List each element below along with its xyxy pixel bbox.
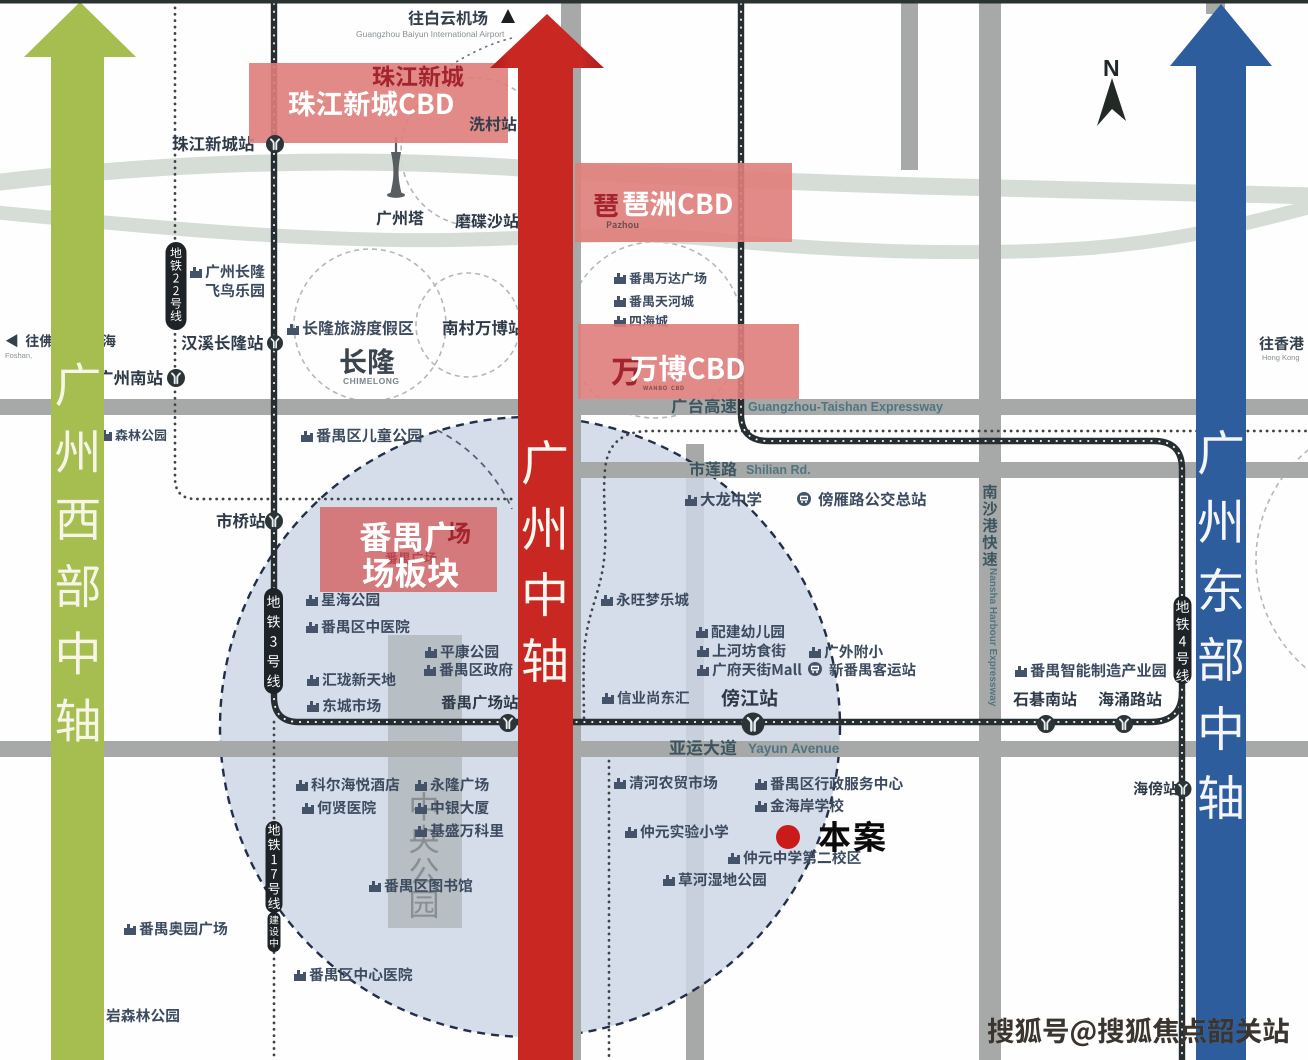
svg-text:Guangzhou-Taishan Expressway: Guangzhou-Taishan Expressway <box>748 400 943 414</box>
svg-text:Nansha Harbour Expressway: Nansha Harbour Expressway <box>987 568 998 707</box>
svg-text:Foshan,: Foshan, <box>5 351 32 360</box>
svg-text:Guangzhou Baiyun International: Guangzhou Baiyun International Airport <box>356 29 505 39</box>
svg-text:Hong Kong: Hong Kong <box>1262 353 1300 362</box>
svg-text:Shilian Rd.: Shilian Rd. <box>746 463 811 477</box>
svg-text:CHIMELONG: CHIMELONG <box>343 376 399 386</box>
svg-text:Yayun Avenue: Yayun Avenue <box>748 741 840 756</box>
svg-text:N: N <box>1103 55 1120 81</box>
